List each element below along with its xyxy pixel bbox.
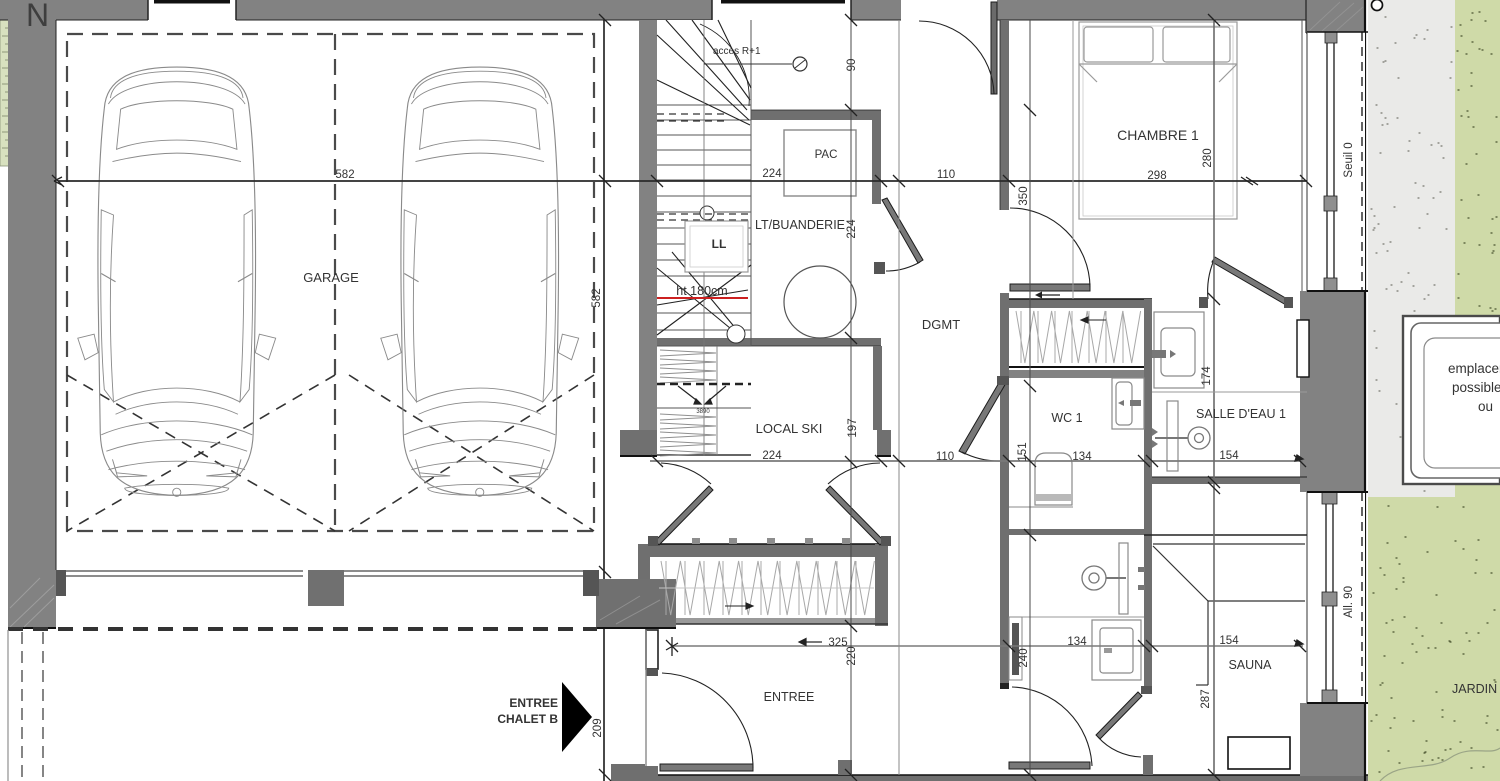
svg-text:LOCAL SKI: LOCAL SKI (756, 421, 823, 436)
svg-text:110: 110 (936, 451, 954, 463)
svg-text:350: 350 (1018, 186, 1030, 205)
svg-text:DGMT: DGMT (922, 317, 960, 332)
svg-text:224: 224 (762, 450, 782, 462)
svg-text:224: 224 (846, 219, 858, 239)
svg-text:ou: ou (1478, 399, 1493, 414)
svg-text:CHAMBRE 1: CHAMBRE 1 (1117, 127, 1199, 143)
svg-text:3890: 3890 (696, 409, 710, 415)
svg-text:LL: LL (712, 237, 727, 251)
svg-text:SALLE D'EAU 1: SALLE D'EAU 1 (1196, 407, 1286, 421)
svg-text:220: 220 (846, 646, 858, 665)
svg-text:582: 582 (591, 288, 603, 307)
svg-text:151: 151 (1017, 442, 1029, 461)
svg-text:280: 280 (1202, 148, 1214, 167)
svg-text:JARDIN: JARDIN (1452, 682, 1497, 696)
svg-text:ENTREE: ENTREE (509, 696, 558, 710)
svg-text:SAUNA: SAUNA (1228, 658, 1272, 672)
svg-text:298: 298 (1147, 170, 1166, 182)
svg-text:N: N (26, 0, 49, 33)
svg-text:240: 240 (1018, 648, 1030, 667)
svg-text:LT/BUANDERIE: LT/BUANDERIE (755, 218, 845, 232)
svg-text:134: 134 (1067, 636, 1087, 648)
svg-text:90: 90 (846, 59, 858, 72)
svg-text:possible: possible (1452, 380, 1500, 395)
svg-text:154: 154 (1219, 635, 1239, 647)
svg-text:134: 134 (1072, 451, 1092, 463)
svg-text:224: 224 (762, 168, 782, 180)
svg-text:WC 1: WC 1 (1051, 411, 1082, 425)
svg-text:197: 197 (847, 418, 859, 437)
svg-text:All. 90: All. 90 (1343, 586, 1355, 618)
svg-text:582: 582 (335, 169, 354, 181)
svg-text:GARAGE: GARAGE (303, 270, 359, 285)
svg-text:209: 209 (592, 718, 604, 737)
svg-text:Seuil 0: Seuil 0 (1343, 142, 1355, 177)
svg-text:325: 325 (828, 637, 847, 649)
svg-text:287: 287 (1200, 689, 1212, 708)
svg-text:174: 174 (1201, 366, 1213, 386)
svg-text:110: 110 (937, 169, 955, 181)
svg-text:accès R+1: accès R+1 (713, 46, 761, 57)
svg-text:154: 154 (1219, 450, 1239, 462)
svg-text:PAC: PAC (815, 149, 838, 161)
svg-text:ht 180cm: ht 180cm (676, 284, 727, 298)
svg-text:CHALET B: CHALET B (497, 712, 558, 726)
svg-text:ENTREE: ENTREE (764, 690, 815, 704)
svg-text:emplacement: emplacement (1448, 361, 1500, 376)
